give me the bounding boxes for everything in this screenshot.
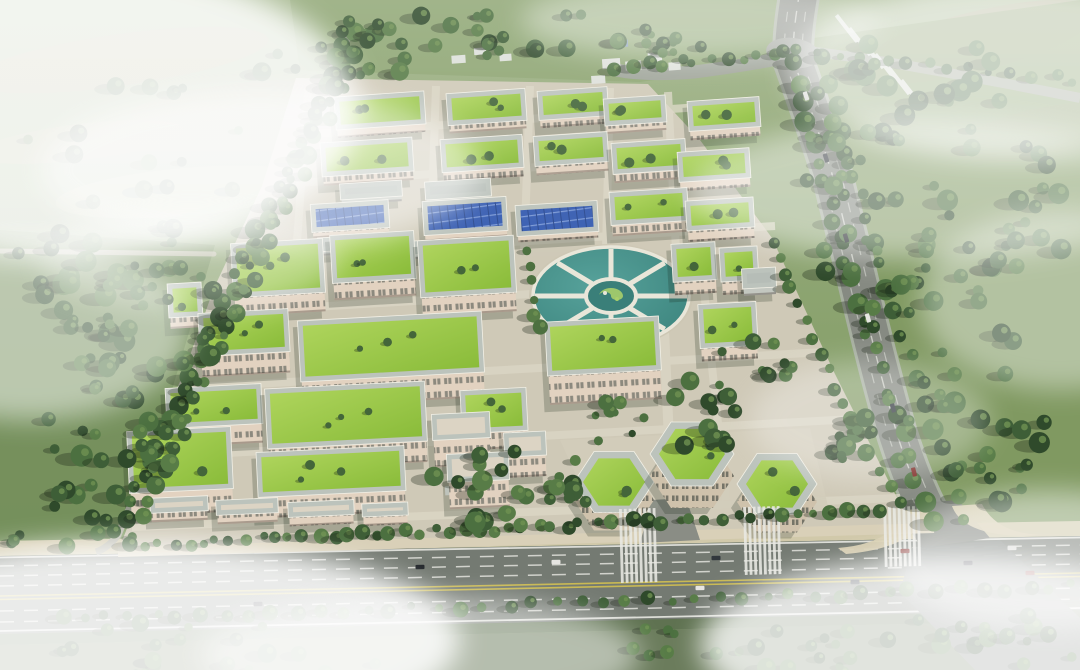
atmospheric-haze	[0, 0, 1080, 670]
aerial-site-rendering	[0, 0, 1080, 670]
rendered-scene	[0, 0, 1080, 670]
